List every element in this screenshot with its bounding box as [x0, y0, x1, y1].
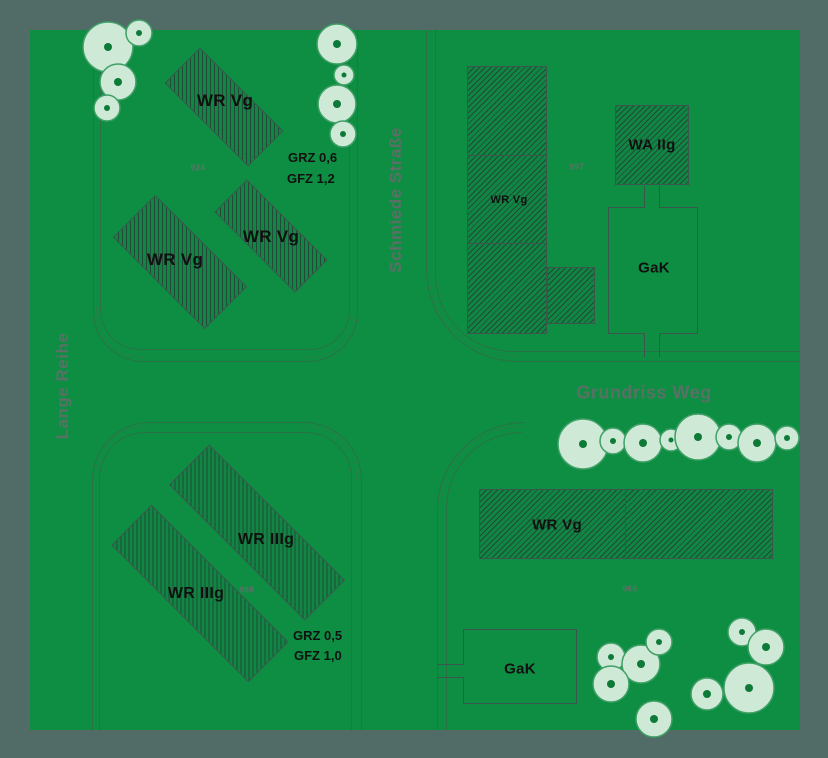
parcel-number-tl: 924 — [191, 164, 206, 173]
zone-tr-residential-divider-2 — [468, 243, 546, 244]
tr-garage-connector-bottom-left — [644, 334, 645, 357]
annotation-bl-gfz: GFZ 1,0 — [294, 648, 342, 663]
label-bl-building-2: WR IIIg — [168, 585, 224, 603]
annotation-tl-grz: GRZ 0,6 — [288, 150, 337, 165]
label-br-garage: GaK — [504, 661, 536, 678]
parcel-number-br: 966 — [623, 585, 638, 594]
label-tl-building-3: WR Vg — [243, 227, 299, 247]
br-garage-left-gap — [462, 665, 465, 677]
label-br-residential: WR Vg — [532, 517, 582, 534]
label-tl-building-1: WR Vg — [197, 91, 253, 111]
label-tr-residential: WR Vg — [491, 194, 528, 206]
zone-br-residential-divider — [625, 490, 626, 558]
label-tr-apartment: WA IIg — [628, 137, 675, 154]
tr-garage-connector-top-left — [644, 186, 645, 208]
label-bl-building-1: WR IIIg — [238, 531, 294, 549]
zoning-plan: WR Vg WR Vg WR Vg WR Vg WA IIg GaK WR II… — [0, 0, 828, 758]
zone-tr-residential-divider-1 — [468, 155, 546, 156]
parcel-number-bl: 998 — [240, 586, 255, 595]
tr-garage-connector-bottom-right — [659, 334, 660, 357]
annotation-tl-gfz: GFZ 1,2 — [287, 171, 335, 186]
annotation-bl-grz: GRZ 0,5 — [293, 628, 342, 643]
street-label-schmiede-strasse: Schmiede Straße — [386, 127, 406, 272]
br-garage-driveway-top — [437, 664, 463, 665]
tr-garage-top-gap — [645, 206, 659, 209]
zone-tr-residential-annex — [547, 267, 595, 324]
label-tr-garage: GaK — [638, 260, 670, 277]
parcel-number-tr: 997 — [570, 163, 585, 172]
label-tl-building-2: WR Vg — [147, 250, 203, 270]
tr-garage-connector-top-right — [659, 186, 660, 208]
br-garage-driveway-bottom — [437, 677, 463, 678]
street-label-grundriss-weg: Grundriss Weg — [576, 383, 711, 404]
zone-br-residential — [479, 489, 773, 559]
street-label-lange-reihe: Lange Reihe — [53, 333, 73, 440]
tr-garage-bottom-gap — [645, 332, 659, 335]
